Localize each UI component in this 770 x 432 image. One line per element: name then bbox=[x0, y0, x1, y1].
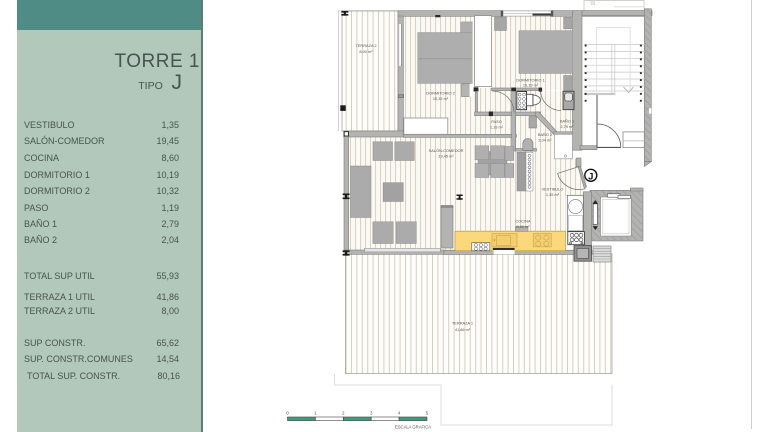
svg-text:TERRAZA 2: TERRAZA 2 bbox=[355, 43, 376, 48]
svg-text:COCINA: COCINA bbox=[515, 219, 531, 224]
svg-text:BAÑO 1: BAÑO 1 bbox=[560, 119, 574, 124]
svg-text:10,19 m²: 10,19 m² bbox=[523, 83, 539, 88]
svg-text:VESTIBULO: VESTIBULO bbox=[542, 187, 564, 192]
svg-text:PASO: PASO bbox=[491, 119, 502, 124]
svg-text:8,00 m²: 8,00 m² bbox=[359, 49, 373, 54]
svg-text:1: 1 bbox=[314, 411, 317, 416]
svg-text:2,79 m²: 2,79 m² bbox=[560, 124, 574, 129]
svg-text:4: 4 bbox=[398, 411, 401, 416]
svg-text:1,19 m²: 1,19 m² bbox=[490, 125, 504, 130]
svg-text:1,35 m²: 1,35 m² bbox=[546, 192, 560, 197]
svg-text:41,86 m²: 41,86 m² bbox=[455, 327, 471, 332]
svg-text:BAÑO 2: BAÑO 2 bbox=[538, 132, 552, 137]
svg-text:TERRAZA 1: TERRAZA 1 bbox=[452, 321, 473, 326]
svg-text:3: 3 bbox=[370, 411, 373, 416]
svg-text:10,32 m²: 10,32 m² bbox=[433, 96, 449, 101]
svg-text:SALÓN-COMEDOR: SALÓN-COMEDOR bbox=[429, 148, 464, 153]
svg-text:19,45 m²: 19,45 m² bbox=[438, 154, 454, 159]
svg-text:ESCALA GRAFICA: ESCALA GRAFICA bbox=[395, 425, 431, 430]
svg-text:J: J bbox=[588, 171, 593, 182]
svg-text:DORMITORIO 2: DORMITORIO 2 bbox=[426, 91, 454, 96]
svg-text:2,04 m²: 2,04 m² bbox=[538, 138, 552, 143]
svg-text:5: 5 bbox=[426, 411, 429, 416]
svg-text:2: 2 bbox=[342, 411, 345, 416]
svg-text:8,60 m²: 8,60 m² bbox=[516, 224, 530, 229]
svg-text:0: 0 bbox=[286, 411, 289, 416]
